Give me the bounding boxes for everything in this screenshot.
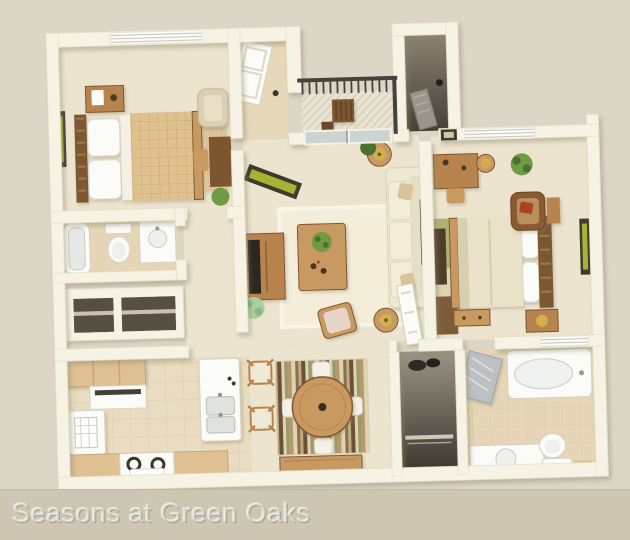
desk-chair xyxy=(193,149,209,171)
sink-island xyxy=(199,358,241,441)
coffee-table xyxy=(297,223,347,290)
calendar xyxy=(75,417,98,448)
wall-bedroom1-entry xyxy=(228,28,243,138)
sliding-glass-door[interactable] xyxy=(305,129,391,144)
dining-chair xyxy=(314,438,332,454)
bench-trunk xyxy=(454,309,490,326)
side-table-lamp xyxy=(476,154,494,172)
throw-pillow xyxy=(397,182,414,200)
laundry-floor xyxy=(399,350,458,468)
tv xyxy=(248,240,262,294)
bedroom2-window xyxy=(465,127,535,140)
wall-bedroom1-bottom-seg xyxy=(227,206,245,218)
caption-bar: Seasons at Green Oaks xyxy=(0,489,630,540)
range xyxy=(120,452,175,477)
range-hood xyxy=(90,385,147,410)
wall-balcony-left-seg xyxy=(289,132,305,144)
bedroom2-bottom-window xyxy=(541,336,589,347)
floorplan-render xyxy=(0,0,630,540)
red-pillow xyxy=(519,201,533,214)
nightstand xyxy=(85,85,124,112)
bar-stool xyxy=(248,405,275,432)
floorplan xyxy=(46,18,609,491)
wall-entry-balcony xyxy=(286,26,302,92)
caption-text: Seasons at Green Oaks xyxy=(12,498,311,529)
floorplan-page: Seasons at Green Oaks xyxy=(0,0,630,540)
round-table xyxy=(292,376,354,438)
bathtub xyxy=(507,348,592,398)
armchair xyxy=(197,89,228,128)
refrigerator xyxy=(68,410,105,455)
upper-cabinets xyxy=(67,359,146,387)
wall-mid-b xyxy=(419,338,463,351)
bedroom1-window xyxy=(110,30,202,45)
tv-console xyxy=(246,233,286,300)
wall-mid-a xyxy=(389,340,397,352)
wall-bathroom1-right-a xyxy=(175,208,185,226)
side-table xyxy=(547,197,561,223)
nightstand xyxy=(526,309,559,332)
wall-closet-right xyxy=(446,22,461,132)
vanity-sink xyxy=(139,218,176,263)
sink-basin xyxy=(207,416,235,433)
bar-stool xyxy=(247,359,274,386)
hall-closets xyxy=(65,286,184,341)
dining-chair xyxy=(312,362,330,378)
bathtub xyxy=(63,222,90,275)
sink-basin xyxy=(206,396,234,415)
dresser xyxy=(433,228,447,284)
dining xyxy=(275,359,370,480)
desk-chair xyxy=(446,188,464,203)
wall-bathroom1-right-b xyxy=(176,260,187,280)
table-lamp xyxy=(91,90,103,105)
end-table-lamp xyxy=(374,308,399,333)
wall-art xyxy=(579,218,591,274)
